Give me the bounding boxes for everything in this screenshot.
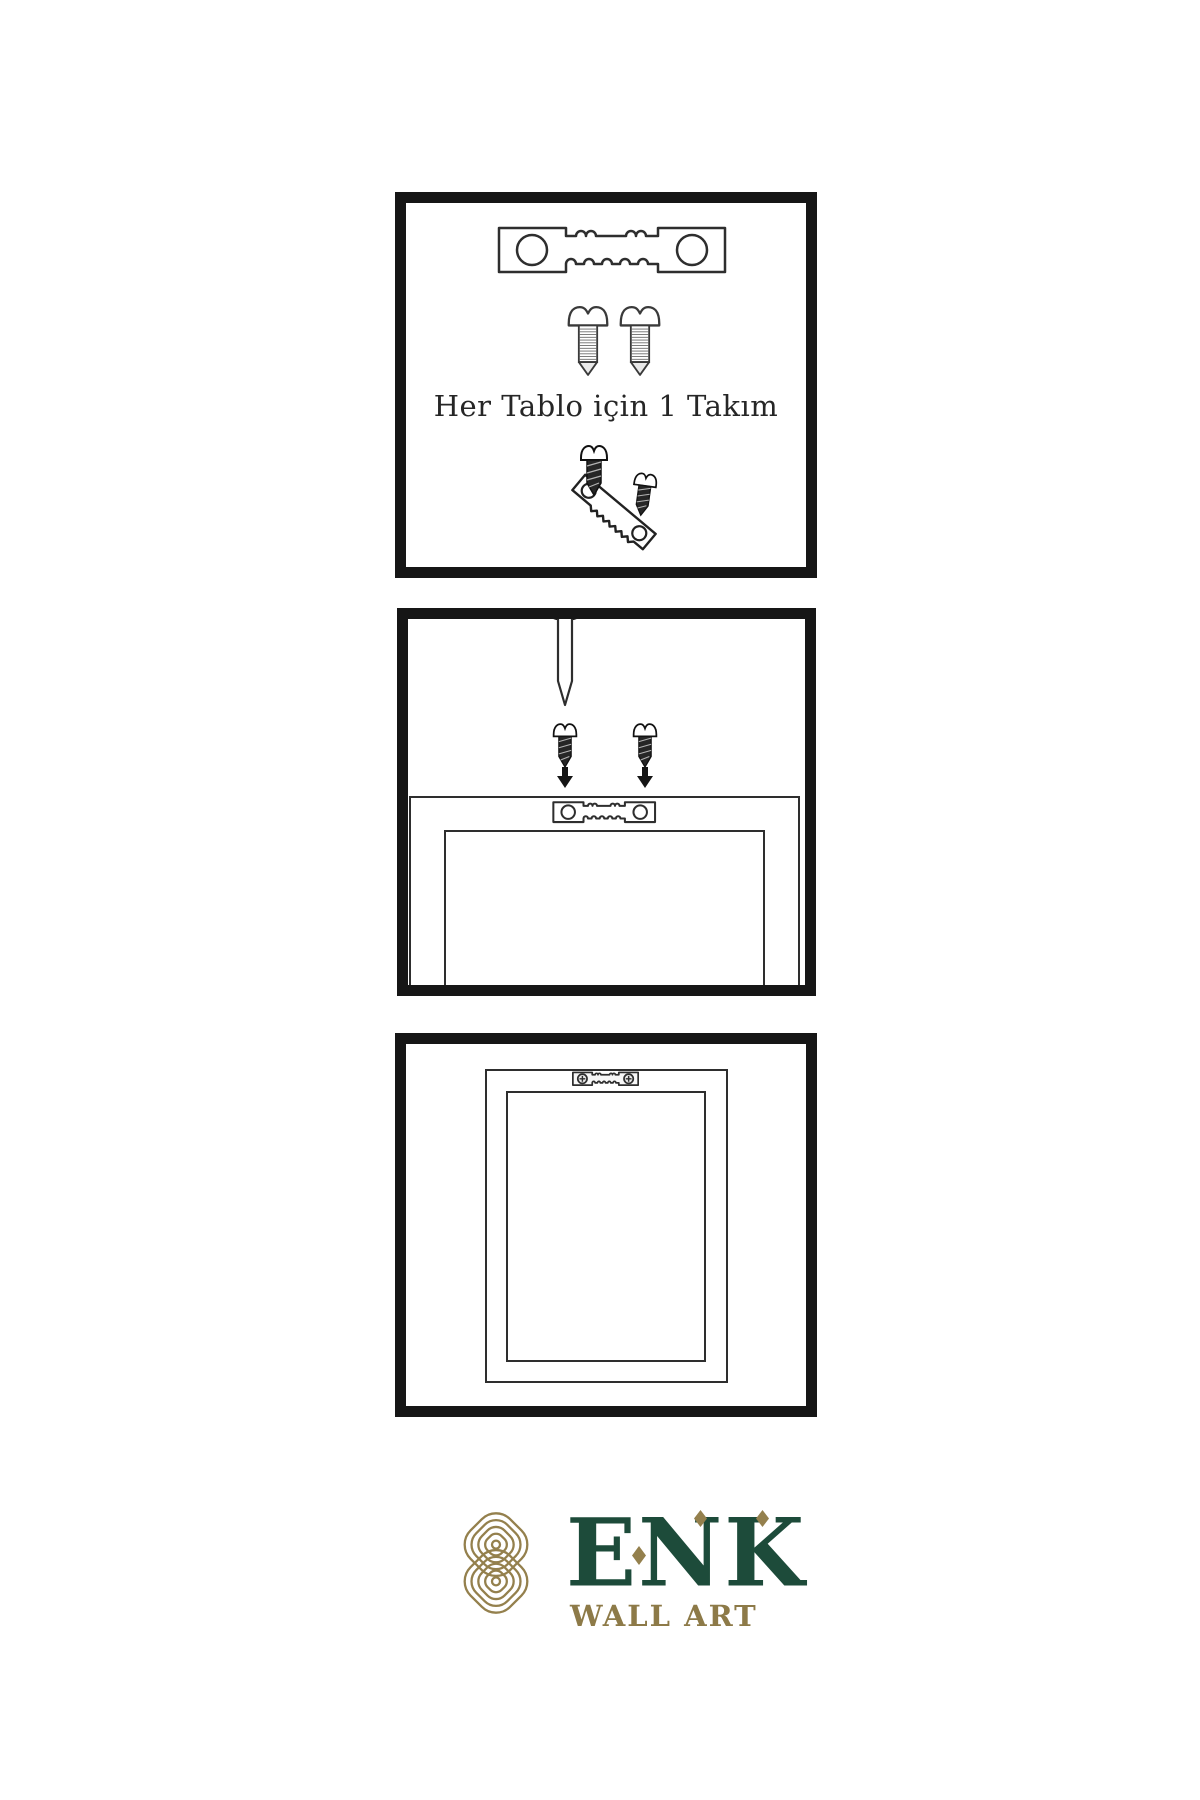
dark-screw-icon xyxy=(631,723,659,769)
instruction-sheet: { "page": {"background": "#ffffff", "kin… xyxy=(0,0,1200,1800)
panel-hung-frame xyxy=(395,1033,817,1417)
panel-hardware-kit: Her Tablo için 1 Takım xyxy=(395,192,817,578)
sawtooth-hanger-icon xyxy=(552,800,657,825)
screw-icon xyxy=(566,303,610,379)
wall-nail-icon xyxy=(545,608,585,721)
screw-icon xyxy=(618,303,662,379)
frame-back-inner-outline xyxy=(506,1091,706,1362)
frame-back-inner-outline xyxy=(444,830,765,996)
knot-loop-a xyxy=(456,1505,535,1584)
interlocked-knot-icon xyxy=(438,1498,554,1628)
sawtooth-hanger-icon xyxy=(496,223,728,277)
panel-mounting-steps xyxy=(397,608,816,996)
down-arrow-icon xyxy=(637,767,653,789)
brand-name: ENK xyxy=(566,1504,806,1602)
dark-screw-icon xyxy=(630,473,658,517)
knot-loop-b xyxy=(456,1542,535,1621)
dark-screw-icon xyxy=(551,723,579,769)
brand-subtitle: WALL ART xyxy=(570,1599,758,1633)
down-arrow-icon xyxy=(557,767,573,789)
brand-wordmark: ENK xyxy=(566,1504,806,1600)
kit-caption: Her Tablo için 1 Takım xyxy=(406,389,806,423)
installed-sawtooth-hanger-icon xyxy=(572,1071,639,1088)
hanger-assembly-demo xyxy=(552,443,682,555)
